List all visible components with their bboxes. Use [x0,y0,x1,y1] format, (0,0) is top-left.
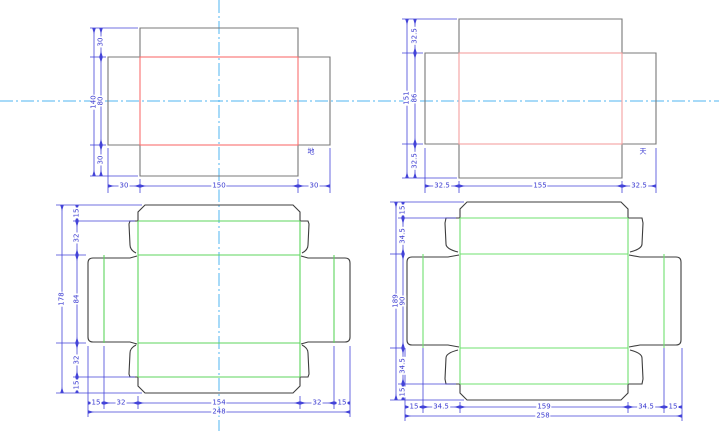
dieline-canvas [0,0,719,431]
base-dieline-dimensions [56,205,350,417]
lid-dieline-creases [423,218,664,384]
cad-drawing-area: 140 30 80 30 30 150 30 地 151 32.5 86 32.… [0,0,719,431]
base-view-dimensions [90,28,330,193]
lid-view-bottom-flap [459,144,622,178]
lid-dieline-top-block [445,202,643,252]
lid-dieline-left-block [407,255,459,347]
base-dieline-right-block [301,256,350,344]
lid-dieline-dimensions [390,202,682,421]
lid-view-outline [425,19,656,178]
lid-view-right-flap [622,53,656,144]
lid-view-panel-crease [459,53,622,144]
lid-dieline-bottom-block [445,350,643,400]
base-dieline-left-block [88,256,137,344]
lid-view-top-flap [459,19,622,53]
lid-dieline-right-block [629,255,681,347]
lid-view-dimensions [402,19,656,193]
lid-view-left-flap [425,53,459,144]
lid-dieline-outline [407,202,681,400]
